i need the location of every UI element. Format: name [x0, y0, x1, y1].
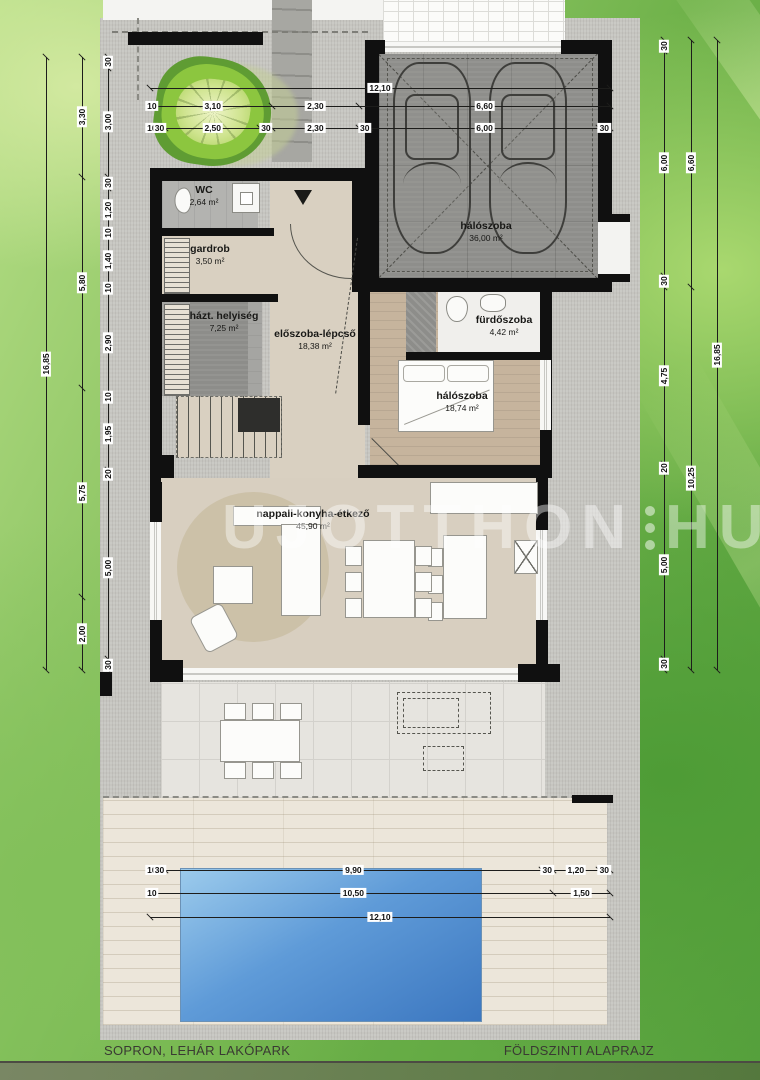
room-area: 4,42 m²	[476, 327, 533, 338]
wardrobe	[164, 238, 190, 294]
room-area: 7,25 m²	[190, 323, 259, 334]
room-name: előszoba-lépcső	[274, 328, 356, 341]
dining-chair	[415, 598, 432, 618]
washing-machines	[164, 304, 190, 396]
footer-rule	[0, 1061, 760, 1063]
room-label-wc: WC 2,64 m²	[190, 184, 219, 208]
patio-chair	[252, 762, 274, 779]
pillow	[403, 365, 445, 382]
washbasin	[232, 183, 260, 213]
living-window-south	[183, 668, 518, 680]
room-name: WC	[190, 184, 219, 197]
patio-chair	[224, 762, 246, 779]
living-wall-right-lower	[536, 620, 548, 668]
dining-chair	[345, 572, 362, 592]
entry-arrow-icon	[294, 190, 312, 205]
swimming-pool	[180, 868, 482, 1022]
floor-plan-page: WC 2,64 m² gardrob 3,50 m² házt. helyisé…	[0, 0, 760, 1080]
bathroom-wall	[406, 352, 540, 360]
room-name: gardrob	[190, 243, 230, 256]
garage-door	[385, 42, 561, 52]
west-wall-right	[352, 168, 365, 292]
patio-table	[220, 720, 300, 762]
room-label-bathroom: fürdőszoba 4,42 m²	[476, 314, 533, 338]
deck-edge-line	[103, 796, 607, 798]
wall-niche	[598, 214, 630, 282]
room-area: 3,50 m²	[190, 256, 230, 267]
boundary-wall	[128, 32, 263, 45]
bedroom-wall-left	[358, 292, 370, 425]
pillow	[447, 365, 489, 382]
room-area: 18,38 m²	[274, 341, 356, 352]
outdoor-sofa-outline	[397, 692, 491, 734]
deck-wall-stub	[572, 795, 613, 803]
room-label-garage: hálószoba 36,00 m²	[460, 220, 511, 244]
living-window-left	[150, 522, 161, 620]
dining-chair	[415, 572, 432, 592]
bedroom-window	[540, 360, 551, 430]
shower	[406, 292, 436, 352]
patio-chair	[280, 762, 302, 779]
room-area: 18,74 m²	[436, 403, 487, 414]
car	[393, 62, 471, 254]
room-label-utility: házt. helyiség 7,25 m²	[190, 310, 259, 334]
outdoor-table-outline	[423, 746, 464, 771]
living-wall-left-upper	[150, 482, 162, 522]
bedroom-wall-bottom	[358, 465, 552, 478]
patio-chair	[252, 703, 274, 720]
watermark: UJOTTHON HU	[222, 492, 760, 563]
room-label-bedroom: hálószoba 18,74 m²	[436, 390, 487, 414]
basin-bowl	[240, 192, 253, 205]
room-area: 36,00 m²	[460, 233, 511, 244]
room-area: 2,64 m²	[190, 197, 219, 208]
watermark-dots-icon	[645, 506, 655, 550]
living-corner-left	[150, 660, 183, 682]
footer-project-title: SOPRON, LEHÁR LAKÓPARK	[104, 1043, 290, 1058]
garage-wall-left	[365, 40, 379, 292]
boundary-wall	[100, 672, 112, 696]
room-name: fürdőszoba	[476, 314, 533, 327]
dining-chair	[345, 598, 362, 618]
gardrob-hazt-wall	[162, 294, 278, 302]
wc-gardrob-wall	[162, 228, 274, 236]
footer-band	[0, 1063, 760, 1080]
west-wall-top	[150, 168, 365, 181]
patio-chair	[280, 703, 302, 720]
watermark-text-left: UJOTTHON	[222, 492, 635, 563]
room-name: hálószoba	[436, 390, 487, 403]
patio-chair	[224, 703, 246, 720]
watermark-text-right: HU	[665, 492, 760, 563]
property-line	[137, 18, 139, 100]
room-label-gardrob: gardrob 3,50 m²	[190, 243, 230, 267]
room-name: házt. helyiség	[190, 310, 259, 323]
stair-void	[238, 398, 280, 432]
street-strip	[103, 0, 383, 20]
room-label-hall: előszoba-lépcső 18,38 m²	[274, 328, 356, 352]
footer-drawing-title: FÖLDSZINTI ALAPRAJZ	[504, 1043, 654, 1058]
room-name: hálószoba	[460, 220, 511, 233]
west-wall-left	[150, 168, 162, 482]
coffee-table	[213, 566, 253, 604]
washbasin	[480, 294, 506, 312]
garage-wall-bottom	[365, 278, 612, 292]
outdoor-sofa-seat	[403, 698, 459, 728]
